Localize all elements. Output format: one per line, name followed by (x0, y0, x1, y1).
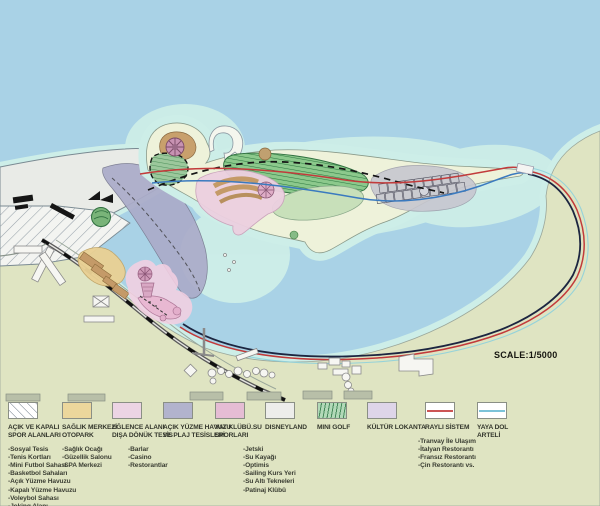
legend-swatch (367, 402, 397, 419)
legend-swatch-line (427, 410, 453, 412)
legend-item-list: -Sağlık Ocağı -Güzellik Salonu -SPA Merk… (62, 446, 117, 471)
legend-item: RAYLI SİSTEM (425, 402, 469, 432)
legend-item-title: MINI GOLF (317, 424, 350, 432)
legend-swatch (265, 402, 295, 419)
legend-item: MINI GOLF (317, 402, 350, 432)
legend-swatch (8, 402, 38, 419)
legend-item-title: YAYA DOL ARTELİ (477, 424, 508, 440)
tree-circle (92, 208, 111, 227)
legend-item-list: -Jetski -Su Kayağı -Optimis -Sailing Kur… (243, 446, 296, 495)
legend-item-title: SAĞLIK MERKEZİ OTOPARK (62, 424, 117, 440)
legend-item: SAĞLIK MERKEZİ OTOPARK-Sağlık Ocağı -Güz… (62, 402, 117, 470)
legend-swatch-line (479, 410, 505, 412)
legend-swatch (112, 402, 142, 419)
legend-item-list: -Barlar -Casino -Restorantlar (128, 446, 173, 471)
scale-label: SCALE:1/5000 (494, 350, 557, 360)
legend-item-title: DISNEYLAND (265, 424, 307, 432)
legend-swatch (317, 402, 347, 419)
legend: AÇIK VE KAPALI SPOR ALANLARI-Sosyal Tesi… (0, 400, 600, 506)
legend-item: YAYA DOL ARTELİ (477, 402, 508, 440)
legend-swatch (163, 402, 193, 419)
legend-item-title: RAYLI SİSTEM (425, 424, 469, 432)
legend-swatch (215, 402, 245, 419)
legend-item-list: -Tranvay İle Ulaşım -İtalyan Restorantı … (418, 438, 476, 471)
legend-swatch (425, 402, 455, 419)
legend-item: DISNEYLAND (265, 402, 307, 432)
legend-swatch (62, 402, 92, 419)
legend-swatch (477, 402, 507, 419)
site-plan-page: SCALE:1/5000 AÇIK VE KAPALI SPOR ALANLAR… (0, 0, 600, 506)
